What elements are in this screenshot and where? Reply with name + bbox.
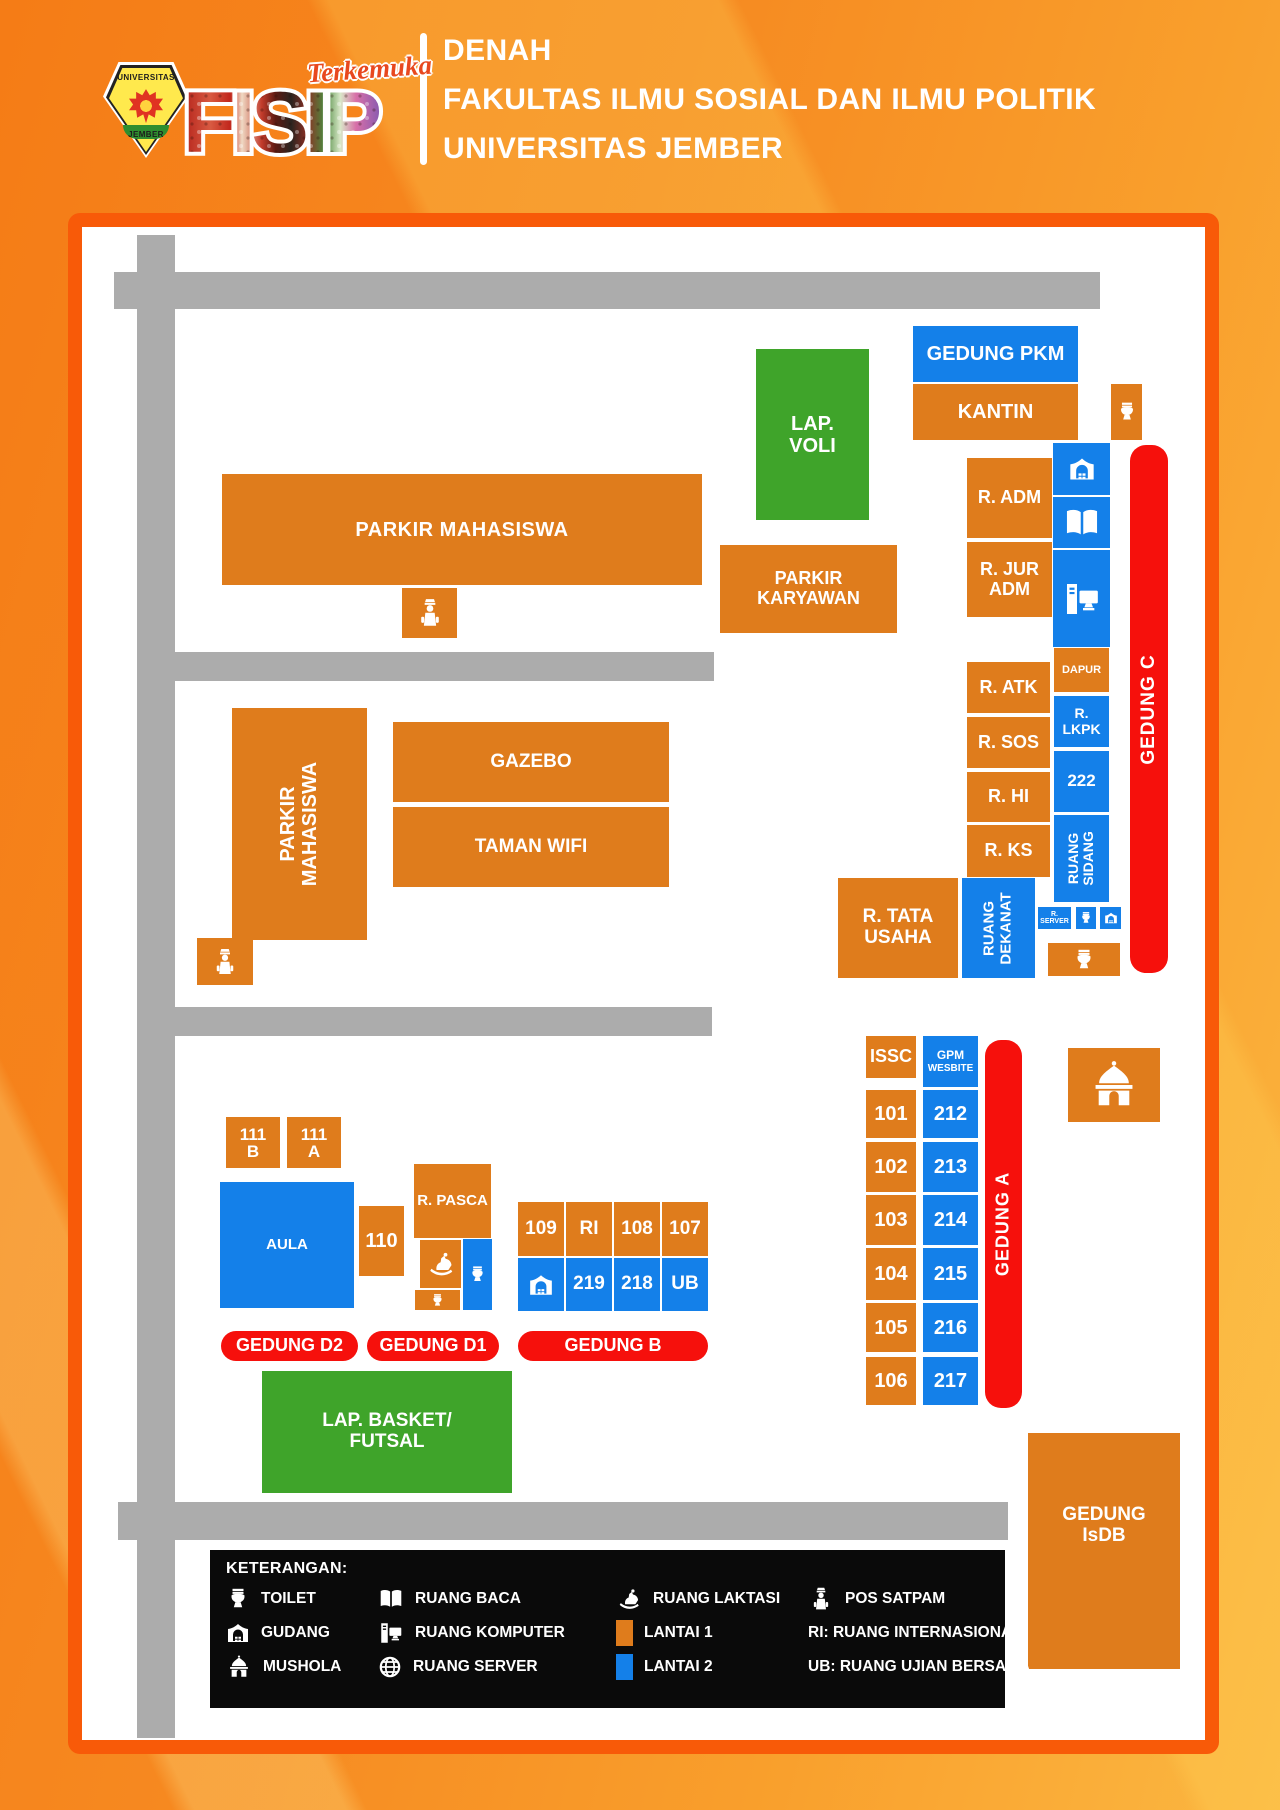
legend-item-ruang-komputer: RUANG KOMPUTER xyxy=(378,1620,616,1646)
room-103: 103 xyxy=(866,1195,916,1245)
satpam-icon xyxy=(808,1586,834,1612)
unej-emblem: UNIVERSITAS JEMBER xyxy=(103,62,189,158)
label-gedung-d1: GEDUNG D1 xyxy=(367,1331,499,1361)
building-taman-wifi: TAMAN WIFI xyxy=(393,807,669,887)
svg-text:FISIP: FISIP xyxy=(183,75,380,171)
laktasi-icon xyxy=(420,1240,461,1288)
room-219: 219 xyxy=(566,1258,612,1311)
legend-item-ruang-baca: RUANG BACA xyxy=(378,1586,616,1612)
mushola-icon xyxy=(226,1654,252,1680)
gudang-icon xyxy=(518,1258,564,1311)
building-parkir-mahasiswa-side: PARKIRMAHASISWA xyxy=(232,708,367,940)
room-213: 213 xyxy=(923,1142,978,1192)
building-gazebo: GAZEBO xyxy=(393,722,669,802)
lantai2-swatch xyxy=(616,1654,633,1680)
room-111b: 111B xyxy=(226,1117,280,1168)
room-r-atk: R. ATK xyxy=(967,662,1050,713)
room-ruang-dekanat: RUANGDEKANAT xyxy=(962,878,1035,978)
room-215: 215 xyxy=(923,1248,978,1300)
mushola-icon xyxy=(1068,1048,1160,1122)
toilet-icon xyxy=(1076,907,1096,929)
ruang-komputer-icon xyxy=(1053,550,1110,647)
room-r-jur-adm: R. JURADM xyxy=(967,542,1052,617)
legend-title: KETERANGAN: xyxy=(226,1560,991,1578)
fisip-batik-wordmark: FISIP FISIP xyxy=(181,72,431,172)
legend-item-gudang: GUDANG xyxy=(226,1621,378,1645)
toilet-icon xyxy=(463,1239,492,1310)
room-105: 105 xyxy=(866,1303,916,1352)
room-104: 104 xyxy=(866,1248,916,1300)
globe-icon xyxy=(378,1655,402,1679)
room-ri: RI xyxy=(566,1202,612,1256)
room-r-pasca: R. PASCA xyxy=(414,1164,491,1238)
toilet-icon xyxy=(415,1290,460,1310)
page: UNIVERSITAS JEMBER xyxy=(0,0,1280,1810)
ruang-baca-icon xyxy=(1053,497,1110,548)
laktasi-icon xyxy=(616,1586,642,1612)
title-line-2: FAKULTAS ILMU SOSIAL DAN ILMU POLITIK xyxy=(443,83,1096,117)
campus-map: LAP.VOLI GEDUNG PKM KANTIN PARKIR MAHASI… xyxy=(82,227,1205,1740)
room-109: 109 xyxy=(518,1202,564,1256)
title-line-3: UNIVERSITAS JEMBER xyxy=(443,132,1096,166)
satpam-icon xyxy=(402,588,457,638)
room-r-server: R.SERVER xyxy=(1038,907,1071,929)
room-r-lkpk: R.LKPK xyxy=(1054,696,1109,747)
legend-item-ri: RI: RUANG INTERNASIONAL xyxy=(808,1624,1030,1642)
road-bottom xyxy=(118,1502,1008,1540)
legend: KETERANGAN: TOILET RUANG BACA RUANG LAKT… xyxy=(210,1550,1005,1708)
room-gpm-wesbite: GPMWESBITE xyxy=(923,1036,978,1087)
room-issc: ISSC xyxy=(866,1036,916,1078)
legend-item-ruang-server: RUANG SERVER xyxy=(378,1655,616,1679)
room-106: 106 xyxy=(866,1357,916,1405)
building-lap-basket-futsal: LAP. BASKET/FUTSAL xyxy=(262,1371,512,1493)
room-107: 107 xyxy=(662,1202,708,1256)
gudang-icon xyxy=(1100,907,1121,929)
label-gedung-c: GEDUNG C xyxy=(1130,445,1168,973)
toilet-icon xyxy=(1048,943,1120,976)
fisip-logo: UNIVERSITAS JEMBER xyxy=(95,28,435,178)
emblem-city-text: JEMBER xyxy=(103,130,189,139)
building-parkir-mahasiswa: PARKIR MAHASISWA xyxy=(222,474,702,585)
room-212: 212 xyxy=(923,1090,978,1138)
room-102: 102 xyxy=(866,1142,916,1192)
legend-item-lantai-1: LANTAI 1 xyxy=(616,1620,808,1646)
building-aula: AULA xyxy=(220,1182,354,1308)
room-ub: UB xyxy=(662,1258,708,1311)
toilet-icon xyxy=(226,1587,250,1611)
computer-icon xyxy=(378,1620,404,1646)
emblem-university-text: UNIVERSITAS xyxy=(103,73,189,82)
satpam-icon xyxy=(197,938,253,985)
room-ruang-sidang: RUANGSIDANG xyxy=(1054,815,1109,902)
building-gedung-isdb: GEDUNGIsDB xyxy=(1028,1433,1180,1669)
room-110: 110 xyxy=(359,1206,404,1276)
title-line-1: DENAH xyxy=(443,34,1096,68)
legend-item-lantai-2: LANTAI 2 xyxy=(616,1654,808,1680)
legend-item-ruang-laktasi: RUANG LAKTASI xyxy=(616,1586,808,1612)
legend-grid: TOILET RUANG BACA RUANG LAKTASI POS SATP… xyxy=(226,1586,991,1680)
building-parkir-karyawan: PARKIRKARYAWAN xyxy=(720,545,897,633)
label-gedung-b: GEDUNG B xyxy=(518,1331,708,1361)
room-111a: 111A xyxy=(287,1117,341,1168)
room-101: 101 xyxy=(866,1090,916,1138)
label-gedung-a: GEDUNG A xyxy=(985,1040,1022,1408)
room-216: 216 xyxy=(923,1303,978,1352)
road-top xyxy=(114,272,1100,309)
room-214: 214 xyxy=(923,1195,978,1245)
room-r-hi: R. HI xyxy=(967,772,1050,822)
room-218: 218 xyxy=(614,1258,660,1311)
legend-item-mushola: MUSHOLA xyxy=(226,1654,378,1680)
room-r-tata-usaha: R. TATAUSAHA xyxy=(838,878,958,978)
gudang-icon xyxy=(1053,443,1110,495)
gudang-icon xyxy=(226,1621,250,1645)
building-gedung-pkm: GEDUNG PKM xyxy=(913,326,1078,382)
room-r-sos: R. SOS xyxy=(967,717,1050,768)
building-kantin: KANTIN xyxy=(913,384,1078,440)
room-108: 108 xyxy=(614,1202,660,1256)
road-middle-2 xyxy=(172,1007,712,1036)
road-middle-1 xyxy=(172,652,714,681)
book-icon xyxy=(378,1586,404,1612)
room-dapur: DAPUR xyxy=(1054,648,1109,692)
legend-item-ub: UB: RUANG UJIAN BERSAMA xyxy=(808,1658,1030,1676)
label-gedung-d2: GEDUNG D2 xyxy=(221,1331,358,1361)
legend-item-pos-satpam: POS SATPAM xyxy=(808,1586,1030,1612)
legend-item-toilet: TOILET xyxy=(226,1587,378,1611)
lantai1-swatch xyxy=(616,1620,633,1646)
room-r-adm: R. ADM xyxy=(967,458,1052,538)
room-r-ks: R. KS xyxy=(967,825,1050,877)
building-lap-voli: LAP.VOLI xyxy=(756,349,869,520)
room-222: 222 xyxy=(1054,751,1109,812)
page-title: DENAH FAKULTAS ILMU SOSIAL DAN ILMU POLI… xyxy=(443,34,1096,166)
toilet-icon xyxy=(1111,384,1142,440)
room-217: 217 xyxy=(923,1357,978,1405)
